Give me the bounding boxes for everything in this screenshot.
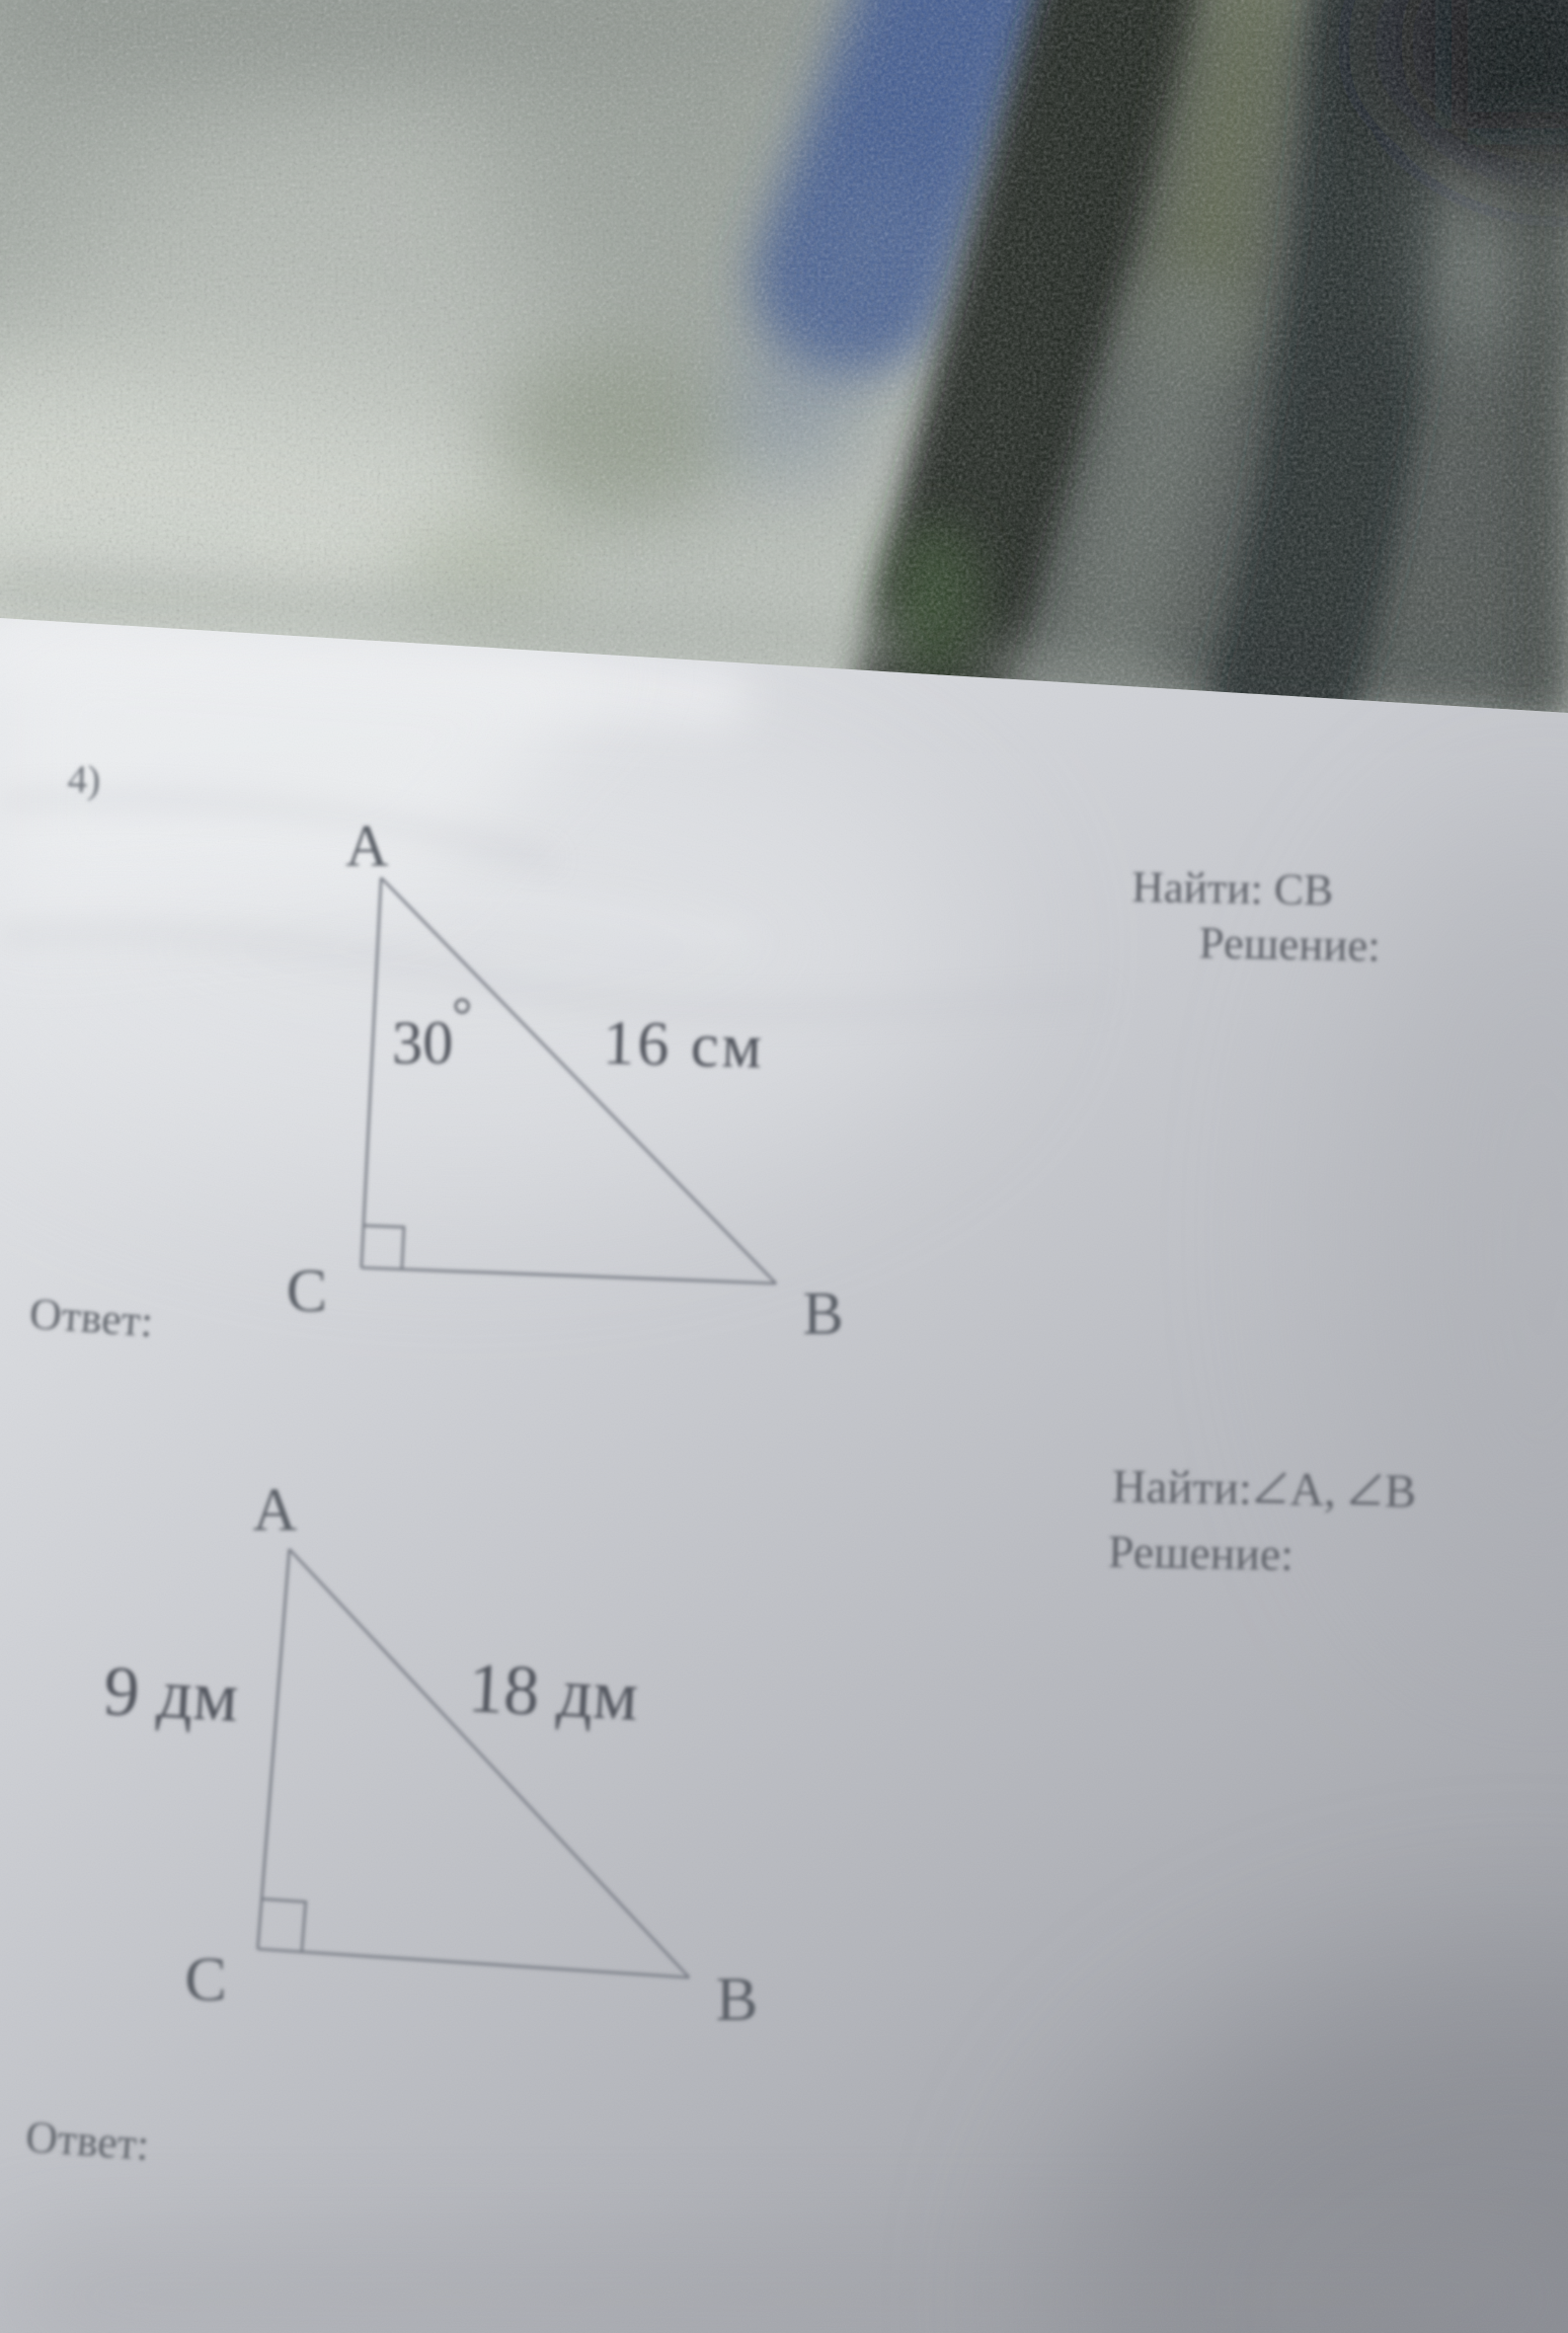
svg-text:B: B	[1384, 1465, 1417, 1518]
svg-text:A,: A,	[1290, 1463, 1337, 1516]
svg-text:18 дм: 18 дм	[466, 1648, 640, 1736]
svg-text:B: B	[716, 1964, 758, 2034]
svg-text:Ответ:: Ответ:	[24, 2112, 150, 2170]
svg-text:9 дм: 9 дм	[102, 1651, 240, 1737]
svg-text:A: A	[346, 814, 388, 879]
svg-text:A: A	[253, 1477, 297, 1544]
svg-text:Решение:: Решение:	[1199, 917, 1381, 971]
svg-text:Найти:: Найти:	[1112, 1460, 1253, 1515]
svg-text:C: C	[286, 1258, 327, 1325]
svg-text:C: C	[185, 1944, 227, 2014]
svg-text:B: B	[803, 1281, 843, 1348]
svg-text:16 см: 16 см	[602, 1007, 766, 1081]
svg-text:Найти: СВ: Найти: СВ	[1132, 862, 1334, 915]
svg-text:4): 4)	[67, 756, 102, 802]
svg-text:Ответ:: Ответ:	[28, 1288, 154, 1347]
svg-text:Решение:: Решение:	[1108, 1526, 1294, 1581]
svg-text:30: 30	[392, 1010, 453, 1077]
